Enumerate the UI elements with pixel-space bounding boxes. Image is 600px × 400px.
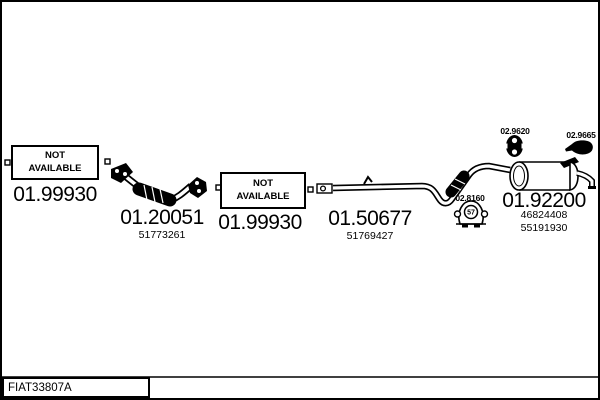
not-available-line1: NOT xyxy=(253,178,273,190)
pipe-coupling-icon xyxy=(317,184,332,193)
oem-number-front-pipe: 51773261 xyxy=(112,229,212,241)
not-available-line2: AVAILABLE xyxy=(237,191,290,203)
oem-number-center-pipe: 51769427 xyxy=(319,230,421,242)
rubber-mount-icon xyxy=(505,135,524,157)
diagram-reference-box: FIAT33807A xyxy=(2,377,150,398)
not-available-box-front: NOT AVAILABLE xyxy=(11,145,99,180)
part-code-center-pipe[interactable]: 01.50677 xyxy=(319,207,421,231)
oem-number-rear-silencer-1: 46824408 xyxy=(489,209,599,221)
pipe-bracket-icon xyxy=(364,177,372,184)
front-pipe-drawing xyxy=(111,163,207,203)
clamp-icon xyxy=(565,140,593,154)
diagram-reference: FIAT33807A xyxy=(8,382,72,394)
part-code-rubber-hanger[interactable]: 02.8160 xyxy=(448,193,492,203)
part-code-front-pipe[interactable]: 01.20051 xyxy=(112,206,212,230)
not-available-line2: AVAILABLE xyxy=(29,163,82,175)
not-available-box-center: NOT AVAILABLE xyxy=(220,172,306,209)
exhaust-diagram-page: 57 NOT AVAILABLE 01.99930 01.20051 51773… xyxy=(0,0,600,400)
rear-flange-icon xyxy=(188,177,207,198)
part-code-clamp[interactable]: 02.9665 xyxy=(558,130,600,140)
rubber-hanger-icon: 57 xyxy=(455,201,488,228)
part-code-front-gasket[interactable]: 01.99930 xyxy=(2,183,108,207)
part-code-rubber-mount[interactable]: 02.9620 xyxy=(493,126,537,136)
hanger-marking: 57 xyxy=(467,210,475,217)
not-available-line1: NOT xyxy=(45,150,65,162)
oem-number-rear-silencer-2: 55191930 xyxy=(489,222,599,234)
rear-silencer-drawing xyxy=(510,157,596,190)
part-code-center-gasket[interactable]: 01.99930 xyxy=(208,211,312,235)
